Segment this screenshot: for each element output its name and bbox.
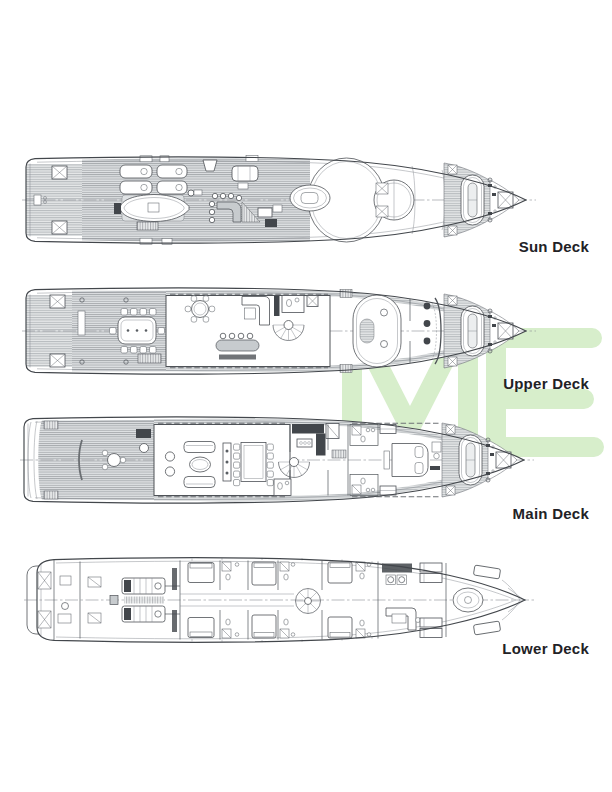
radar-mast-platform <box>374 180 414 220</box>
day-head <box>282 296 304 313</box>
lower-deck-plan <box>22 547 542 653</box>
aft-sideboard <box>78 311 85 335</box>
engine-room-aisle <box>124 597 164 604</box>
vanity <box>432 442 441 452</box>
aft-stairs <box>138 354 161 363</box>
tv-cabinet <box>274 296 280 316</box>
plan-sheet: Sun Deck Upper Deck Main Deck Lower Deck <box>0 0 612 792</box>
jacuzzi <box>290 185 330 211</box>
sun-deck-plan <box>20 148 540 252</box>
main-deck-label: Main Deck <box>389 506 589 522</box>
upper-deck-label: Upper Deck <box>389 376 589 392</box>
aft-stairs-port <box>44 421 58 429</box>
bow-deck-set <box>444 163 519 237</box>
main-deck-plan <box>18 408 538 512</box>
sun-deck-label: Sun Deck <box>389 239 589 255</box>
side-ladder-stbd <box>340 365 352 373</box>
tv-cabinet <box>430 466 440 470</box>
day-head <box>274 479 291 496</box>
green-watermark <box>0 0 612 792</box>
aft-stairs-stbd <box>44 491 58 499</box>
side-ladder-port <box>340 290 352 298</box>
console-table <box>223 443 231 481</box>
deck-hatch-grill <box>137 222 158 230</box>
lower-deck-label: Lower Deck <box>389 641 589 657</box>
spiral-stairs <box>296 589 321 614</box>
locker-box <box>307 296 318 307</box>
upper-deck-plan <box>20 278 540 384</box>
stack-casing <box>353 295 401 367</box>
